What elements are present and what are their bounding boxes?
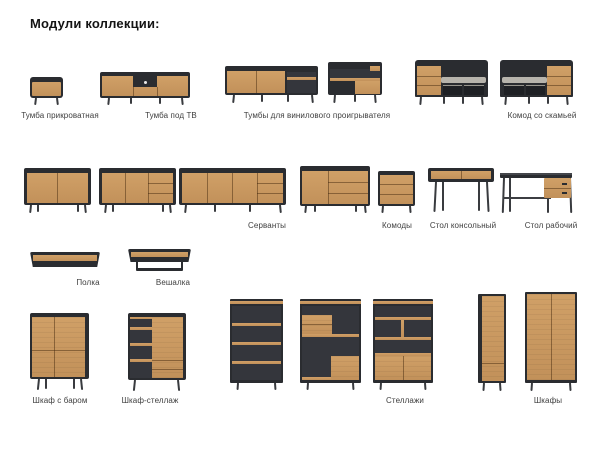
leg: [380, 383, 382, 390]
front-panel: [102, 173, 173, 203]
leg: [409, 206, 412, 213]
leg: [307, 383, 309, 390]
leg: [355, 206, 357, 212]
leg: [274, 383, 276, 390]
seam: [133, 87, 134, 96]
front-panel: [302, 171, 368, 204]
seam: [148, 193, 173, 194]
seam: [328, 193, 368, 194]
leg: [181, 98, 184, 105]
wall-shelf-image: [30, 252, 100, 267]
seam: [461, 171, 462, 179]
leg: [279, 205, 282, 213]
decor-dot: [144, 81, 147, 84]
leg: [424, 383, 426, 390]
leg: [381, 206, 384, 213]
leg: [530, 383, 533, 391]
seam: [257, 173, 258, 203]
seam: [328, 171, 329, 204]
seam: [257, 183, 283, 184]
shelf-board: [130, 359, 152, 362]
seam: [380, 194, 413, 195]
leg: [352, 383, 354, 390]
door: [482, 296, 504, 381]
shelving-open-image: [230, 299, 283, 391]
shelf-board: [302, 377, 331, 380]
leg: [504, 97, 507, 105]
leg: [478, 182, 480, 211]
desktop-face: [500, 173, 572, 175]
drawer-handle: [562, 192, 567, 194]
seam: [152, 360, 183, 361]
label-vinyl-stands: Тумбы для винилового проигрывателя: [244, 111, 390, 121]
bench-dresser-left-image: [415, 60, 488, 104]
leg: [162, 205, 164, 212]
door: [331, 356, 359, 380]
seam: [547, 76, 571, 77]
seam: [482, 363, 504, 364]
shelf-board: [232, 323, 281, 326]
open-compartment: [464, 85, 484, 95]
label-wall-hanger: Вешалка: [156, 278, 190, 288]
shelf-surface: [33, 255, 97, 261]
leg: [547, 97, 549, 104]
shelf-board: [232, 361, 281, 364]
label-wall-shelf: Полка: [76, 278, 99, 288]
leg: [112, 205, 114, 212]
leg: [354, 95, 356, 102]
label-bench-dresser: Комод со скамьей: [508, 111, 577, 121]
bench-seat: [441, 77, 486, 83]
leg: [333, 95, 336, 103]
page-title: Модули коллекции:: [30, 16, 160, 31]
leg: [502, 178, 505, 213]
top-board: [373, 301, 433, 304]
desk-image: [500, 173, 572, 213]
leg: [261, 95, 263, 102]
seam: [302, 324, 332, 325]
label-console-table: Стол консольный: [430, 221, 496, 231]
sideboard-small-image: [25, 168, 90, 213]
shelf-board: [130, 327, 152, 330]
hanger-rail: [136, 268, 183, 271]
leg: [159, 98, 161, 104]
leg: [311, 95, 314, 103]
label-wardrobes: Шкафы: [534, 396, 562, 406]
drawer-unit: [417, 66, 441, 95]
seam: [256, 71, 257, 93]
leg: [133, 380, 136, 391]
label-bar-cabinet: Шкаф с баром: [33, 396, 88, 406]
bench-seat: [502, 77, 547, 83]
leg: [232, 95, 235, 103]
vinyl-stand-wide-image: [225, 66, 318, 104]
shelf-board: [130, 317, 152, 319]
leg: [249, 205, 251, 212]
leg: [37, 379, 40, 390]
tv-stand-image: [100, 72, 190, 105]
drawer-front: [380, 175, 413, 204]
top-board: [300, 301, 361, 304]
sideboard-medium-image: [100, 168, 175, 213]
leg: [314, 206, 316, 212]
leg: [481, 97, 484, 105]
drawer-unit: [547, 66, 571, 95]
divider: [401, 320, 404, 337]
sideboard-large-image: [180, 168, 285, 213]
shelf-board: [232, 342, 281, 345]
vinyl-stand-narrow-image: [328, 62, 382, 104]
leg: [304, 206, 307, 213]
leg: [528, 97, 530, 104]
open-section: [287, 72, 316, 93]
seam: [157, 87, 158, 96]
label-tv-stand: Тумба под ТВ: [145, 111, 197, 121]
label-bedside-table: Тумба прикроватная: [21, 111, 99, 121]
leg: [184, 205, 187, 213]
leg: [443, 97, 445, 104]
seam: [148, 183, 173, 184]
seam: [54, 317, 55, 377]
top-board: [230, 301, 283, 304]
drawer-handle: [562, 183, 567, 185]
leg: [374, 95, 377, 103]
catalog-page: Модули коллекции:: [0, 0, 600, 450]
leg: [462, 97, 464, 104]
leg: [84, 205, 87, 213]
seam: [148, 173, 149, 203]
seam: [547, 85, 571, 86]
leg: [419, 97, 422, 105]
leg: [56, 98, 59, 105]
label-shelving: Стеллажи: [386, 396, 424, 406]
leg: [130, 98, 132, 104]
seam: [32, 350, 85, 351]
drawer-front: [32, 82, 61, 96]
leg: [77, 205, 79, 212]
bedside-table-image: [30, 77, 63, 105]
leg: [569, 383, 572, 391]
leg: [80, 379, 83, 390]
leg: [45, 379, 47, 389]
leg: [482, 383, 485, 391]
leg: [29, 205, 32, 213]
leg: [73, 379, 75, 389]
seam: [152, 369, 183, 370]
leg: [509, 178, 511, 212]
leg: [442, 182, 444, 211]
seam: [207, 173, 208, 203]
leg: [287, 95, 289, 102]
shelf-surface: [131, 252, 188, 257]
leg: [433, 182, 437, 212]
shelf-board: [302, 334, 359, 337]
leg: [177, 380, 180, 391]
seam: [551, 294, 552, 380]
leg: [486, 182, 490, 212]
shelf-board: [130, 343, 152, 346]
seam: [232, 173, 233, 203]
leg: [566, 97, 569, 105]
wardrobe-narrow-image: [478, 294, 506, 391]
dresser-wide-image: [300, 166, 370, 213]
leg: [169, 205, 172, 213]
wardrobe-wide-image: [525, 292, 577, 391]
leg: [34, 98, 37, 105]
leg: [37, 205, 39, 212]
leg: [364, 206, 367, 213]
seam: [544, 188, 571, 189]
label-dressers: Комоды: [382, 221, 412, 231]
label-shelf-cabinet: Шкаф-стеллаж: [122, 396, 179, 406]
seam: [417, 85, 441, 86]
open-compartment: [526, 85, 545, 95]
seam: [125, 173, 126, 203]
shelf-cabinet-image: [128, 313, 186, 391]
seam: [417, 76, 441, 77]
console-table-image: [428, 168, 494, 213]
top-board: [370, 66, 380, 71]
leg: [104, 205, 107, 213]
leg: [107, 98, 110, 105]
wall-hanger-image: [128, 249, 191, 273]
leg: [214, 205, 216, 212]
seam: [257, 193, 283, 194]
hanger-shelf: [128, 249, 191, 262]
seam: [403, 356, 404, 380]
seam: [328, 182, 368, 183]
leg: [499, 383, 502, 391]
leg: [237, 383, 239, 390]
bench-dresser-right-image: [500, 60, 573, 104]
shelf-board: [375, 337, 431, 340]
label-desk: Стол рабочий: [525, 221, 578, 231]
bar-cabinet-image: [30, 313, 89, 391]
seam: [57, 173, 58, 203]
open-compartment: [443, 85, 462, 95]
dresser-narrow-image: [378, 171, 415, 213]
door: [355, 81, 380, 94]
seam: [380, 184, 413, 185]
shelving-mixed-image: [300, 299, 361, 391]
shelf-board: [287, 77, 316, 80]
open-compartment: [504, 85, 524, 95]
label-sideboards: Серванты: [248, 221, 286, 231]
doors: [32, 317, 85, 377]
shelving-combo-image: [373, 299, 433, 391]
